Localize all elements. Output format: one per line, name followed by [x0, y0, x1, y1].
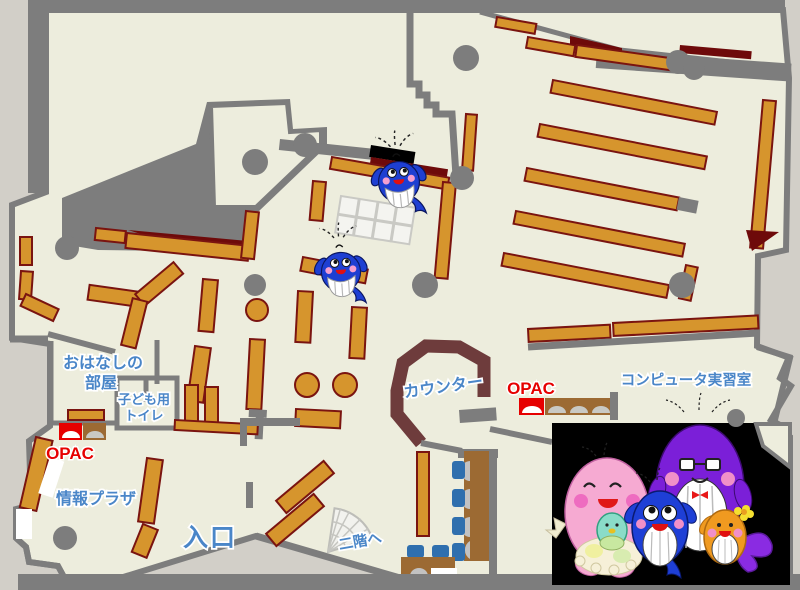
- inner-wall: [246, 418, 300, 426]
- round-table: [333, 373, 357, 397]
- chair: [452, 461, 465, 479]
- bookshelf: [295, 409, 341, 428]
- bookshelf: [185, 385, 198, 423]
- pillar: [450, 166, 474, 190]
- round-table: [295, 373, 319, 397]
- kids-toilet-label-line2: トイレ: [124, 408, 163, 423]
- story-room-label-line2: 部屋: [85, 373, 117, 392]
- pillar: [244, 274, 266, 296]
- chair: [407, 545, 424, 558]
- door-gap: [16, 509, 32, 539]
- pillar: [412, 272, 438, 298]
- pillar: [293, 133, 317, 157]
- opac-center-label: OPAC: [507, 379, 555, 398]
- inner-wall: [459, 407, 497, 423]
- baby-whale-icon: [597, 513, 627, 550]
- info-plaza-label: 情報プラザ: [56, 489, 136, 508]
- bookshelf: [20, 237, 32, 265]
- entrance-label: 入口: [183, 524, 237, 552]
- kids-toilet-label-line1: 子ども用: [118, 392, 170, 407]
- bookshelf: [198, 279, 217, 332]
- opac-left-label: OPAC: [46, 444, 94, 463]
- bookshelf: [417, 452, 429, 536]
- bookshelf: [68, 410, 104, 420]
- inner-wall: [489, 449, 497, 585]
- inner-wall: [246, 482, 253, 508]
- pillar: [55, 236, 79, 260]
- chair: [432, 545, 449, 558]
- computer-room-label: コンピュータ実習室: [621, 371, 752, 389]
- floor-map-canvas: おはなしの 部屋 子ども用 トイレ OPAC 情報プラザ 入口 カウンター OP…: [0, 0, 800, 590]
- pillar: [669, 272, 695, 298]
- bookshelf: [295, 291, 313, 343]
- chair: [452, 517, 465, 535]
- bookshelf: [246, 339, 265, 410]
- bookshelf: [205, 387, 218, 425]
- story-room-label-line1: おはなしの: [63, 354, 143, 372]
- bookshelf: [349, 307, 367, 359]
- bookshelf: [310, 181, 326, 221]
- pillar: [453, 45, 479, 71]
- inner-wall: [240, 418, 247, 446]
- round-table: [246, 299, 268, 321]
- pillar: [683, 58, 705, 80]
- outer-wall-left: [28, 0, 46, 193]
- pillar: [53, 526, 77, 550]
- bookshelf: [95, 228, 126, 243]
- pillar: [242, 149, 268, 175]
- chair: [452, 489, 465, 507]
- library-floor-map: おはなしの 部屋 子ども用 トイレ OPAC 情報プラザ 入口 カウンター OP…: [0, 0, 800, 590]
- inner-wall: [610, 392, 618, 420]
- pillar: [727, 409, 745, 427]
